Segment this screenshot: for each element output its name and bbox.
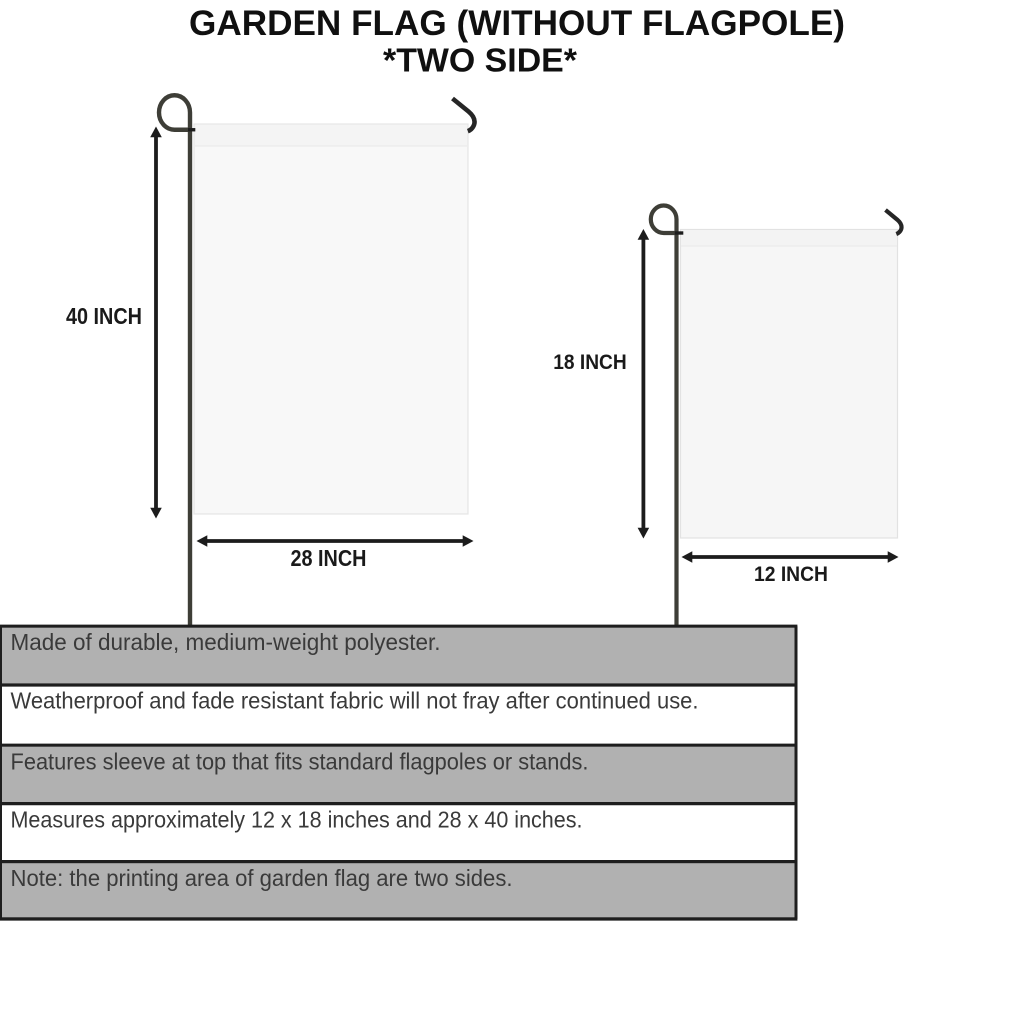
svg-text:40 INCH: 40 INCH <box>66 303 142 329</box>
svg-text:12 INCH: 12 INCH <box>754 563 828 586</box>
svg-text:Measures approximately 12 x 18: Measures approximately 12 x 18 inches an… <box>11 807 583 833</box>
svg-text:*TWO SIDE*: *TWO SIDE* <box>383 42 577 79</box>
svg-text:Note: the printing area of gar: Note: the printing area of garden flag a… <box>11 865 513 891</box>
svg-text:Weatherproof and fade resistan: Weatherproof and fade resistant fabric w… <box>11 688 699 714</box>
svg-text:Features sleeve at top that fi: Features sleeve at top that fits standar… <box>11 749 589 775</box>
svg-text:28 INCH: 28 INCH <box>291 545 367 571</box>
svg-text:Made of durable, medium-weight: Made of durable, medium-weight polyester… <box>11 629 441 655</box>
svg-text:GARDEN FLAG (WITHOUT FLAGPOLE): GARDEN FLAG (WITHOUT FLAGPOLE) <box>189 4 845 43</box>
svg-text:18 INCH: 18 INCH <box>553 351 627 374</box>
